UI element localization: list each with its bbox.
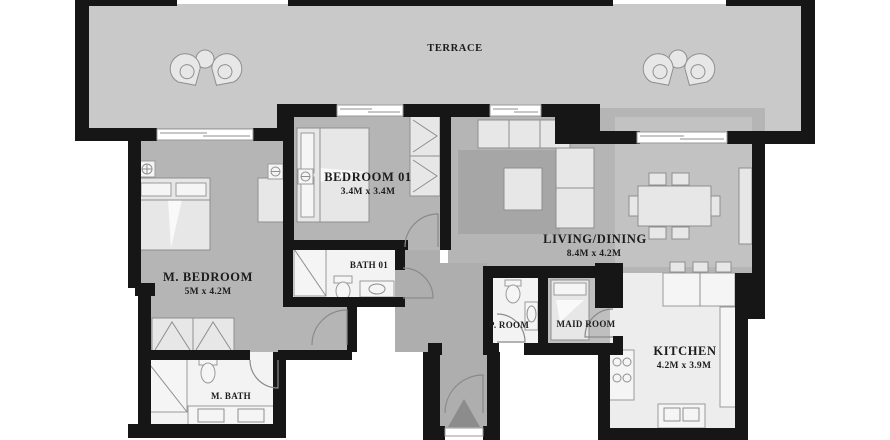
floor-plan: TERRACE BEDROOM 01 3.4M x 3.4M M. BEDROO… <box>0 0 890 440</box>
dining-table <box>638 186 711 226</box>
terrace-slider <box>637 132 727 143</box>
living-dining-dimensions: 8.4M x 4.2M <box>567 249 621 259</box>
wardrobe <box>152 318 234 352</box>
bar-stool <box>693 262 708 272</box>
master-bedroom-label: M. BEDROOM <box>163 270 253 284</box>
pillow <box>554 283 586 295</box>
dining-chair <box>672 227 689 239</box>
bedroom01-label: BEDROOM 01 <box>324 170 412 184</box>
kitchen-dimensions: 4.2M x 3.9M <box>657 361 711 371</box>
maid-room-label: MAID ROOM <box>557 319 616 329</box>
powder-room-label: P. ROOM <box>489 320 529 330</box>
master-bath-label: M. BATH <box>211 391 251 401</box>
ac-unit-icon <box>139 161 155 177</box>
terrace-label: TERRACE <box>427 43 483 54</box>
ac-unit-icon <box>268 164 283 179</box>
terrace-slider <box>157 129 253 140</box>
dining-chair <box>649 173 666 185</box>
dresser <box>258 178 284 222</box>
pillow <box>141 183 171 196</box>
coffee-table <box>504 168 542 210</box>
master-bedroom-dimensions: 5M x 4.2M <box>185 287 232 297</box>
living-dining-label: LIVING/DINING <box>543 232 647 246</box>
bedroom01-dimensions: 3.4M x 3.4M <box>341 187 395 197</box>
stove <box>608 350 634 400</box>
master-bed <box>136 178 210 250</box>
terrace-slider <box>337 105 403 116</box>
kitchen-counter <box>720 307 736 407</box>
kitchen-label: KITCHEN <box>653 344 716 358</box>
tv-console <box>739 168 752 244</box>
maid-bed <box>551 280 589 340</box>
bar-stool <box>716 262 731 272</box>
toilet <box>505 280 521 303</box>
dining-chair <box>672 173 689 185</box>
sink <box>360 281 394 297</box>
floor-plan-svg: TERRACE BEDROOM 01 3.4M x 3.4M M. BEDROO… <box>0 0 890 440</box>
dining-chair <box>649 227 666 239</box>
kitchen-counter <box>663 273 735 306</box>
terrace-slider <box>490 105 541 116</box>
wardrobe <box>410 116 440 196</box>
kitchen-sink <box>658 404 705 428</box>
bath01-label: BATH 01 <box>350 260 388 270</box>
double-vanity <box>188 406 276 425</box>
entrance-threshold <box>445 428 483 436</box>
ac-unit-icon <box>298 169 313 184</box>
pillow <box>176 183 206 196</box>
pillow <box>301 133 314 173</box>
bar-stool <box>670 262 685 272</box>
